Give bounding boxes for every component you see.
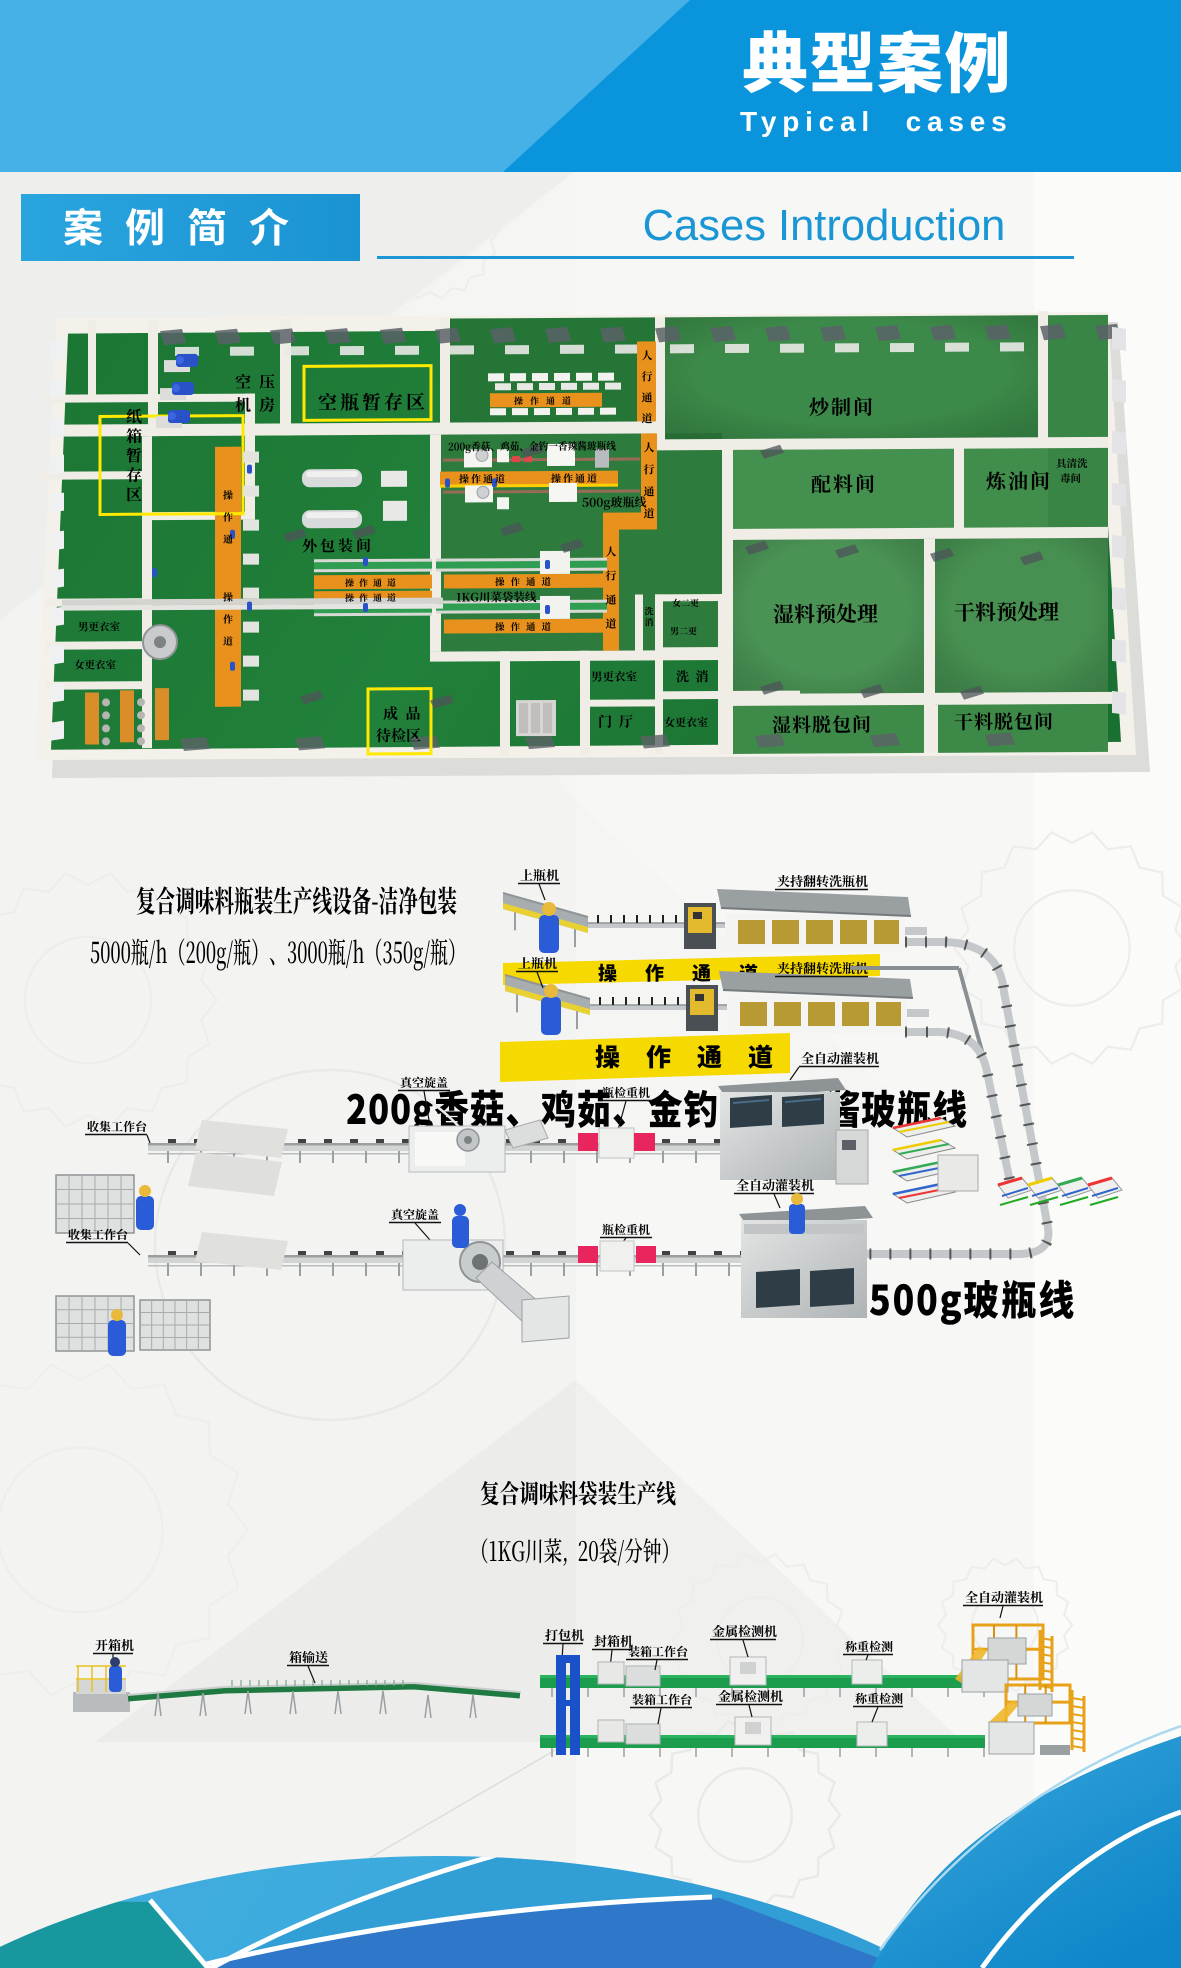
svg-text:Typical cases: Typical cases — [740, 106, 1012, 137]
svg-text:Cases Introduction: Cases Introduction — [643, 202, 1006, 250]
